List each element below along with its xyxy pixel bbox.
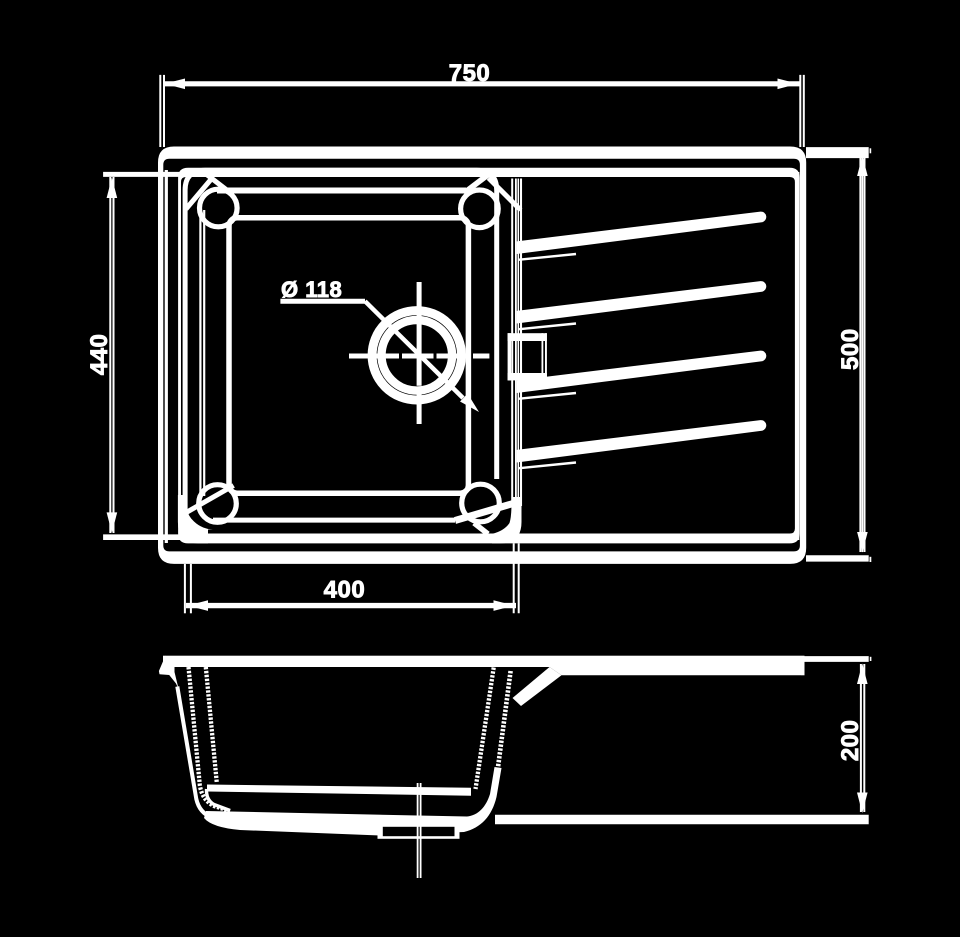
svg-text:500: 500: [837, 328, 864, 370]
svg-text:440: 440: [86, 334, 113, 376]
svg-text:200: 200: [837, 720, 864, 762]
svg-text:750: 750: [449, 60, 491, 87]
svg-text:400: 400: [324, 577, 366, 604]
svg-text:Ø 118: Ø 118: [281, 277, 342, 302]
